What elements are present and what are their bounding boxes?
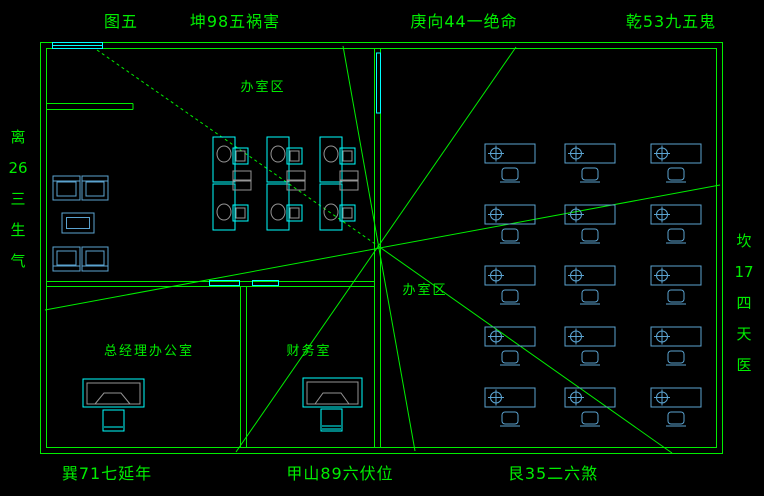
office-chair bbox=[500, 229, 520, 243]
crosshair-target-icon bbox=[488, 329, 504, 345]
workstation-column bbox=[213, 137, 251, 230]
label-office-area-1: 办室区 bbox=[240, 80, 285, 96]
office-desk bbox=[651, 144, 701, 182]
label-26: 26 bbox=[5, 153, 31, 184]
keyboard-block bbox=[233, 171, 251, 180]
label-li-shengqi-column: 离 26 三 生 气 bbox=[5, 122, 31, 277]
office-desk bbox=[651, 388, 701, 426]
door-interior-wall bbox=[377, 53, 381, 113]
ray-southeast bbox=[381, 248, 672, 453]
crosshair-target-icon bbox=[568, 146, 584, 162]
label-office-area-2: 办室区 bbox=[402, 283, 447, 299]
office-desk bbox=[565, 205, 615, 243]
keyboard-block bbox=[233, 181, 251, 190]
floor-plan-drawing bbox=[0, 0, 764, 496]
ray-east-west bbox=[45, 185, 720, 310]
crosshair-target-icon bbox=[654, 207, 670, 223]
finance-desk bbox=[303, 378, 362, 431]
rooms-divider-wall bbox=[241, 286, 247, 448]
office-chair bbox=[500, 351, 520, 365]
label-qian-wugui: 乾53九五鬼 bbox=[626, 14, 716, 30]
label-jiashan-fuwei: 甲山89六伏位 bbox=[286, 466, 393, 482]
workstation-column bbox=[320, 137, 358, 230]
office-chair bbox=[580, 412, 600, 426]
office-desk bbox=[565, 144, 615, 182]
label-qi: 气 bbox=[5, 246, 31, 277]
label-manager-office: 总经理办公室 bbox=[104, 344, 194, 360]
office-chair bbox=[580, 351, 600, 365]
label-tian: 天 bbox=[731, 319, 757, 350]
office-chair bbox=[666, 290, 686, 304]
keyboard-block bbox=[340, 171, 358, 180]
label-17: 17 bbox=[731, 257, 757, 288]
office-chair bbox=[666, 229, 686, 243]
office-desk bbox=[651, 327, 701, 365]
office-chair bbox=[666, 412, 686, 426]
keyboard-block bbox=[340, 181, 358, 190]
office-chair bbox=[500, 168, 520, 182]
label-yi: 医 bbox=[731, 350, 757, 381]
crosshair-target-icon bbox=[488, 390, 504, 406]
crosshair-target-icon bbox=[568, 329, 584, 345]
office-desk bbox=[485, 388, 535, 426]
label-si: 四 bbox=[731, 288, 757, 319]
label-kun-huohai: 坤98五祸害 bbox=[190, 14, 280, 30]
office-chair bbox=[500, 412, 520, 426]
office-desk bbox=[565, 266, 615, 304]
label-gengxiang-jueming: 庚向44一绝命 bbox=[410, 14, 517, 30]
feng-shui-rays bbox=[45, 46, 720, 453]
keyboard-block bbox=[287, 171, 305, 180]
crosshair-target-icon bbox=[488, 207, 504, 223]
crosshair-target-icon bbox=[654, 268, 670, 284]
crosshair-target-icon bbox=[568, 390, 584, 406]
office-desk bbox=[565, 388, 615, 426]
manager-chair bbox=[103, 410, 124, 431]
office-desk bbox=[485, 144, 535, 182]
crosshair-target-icon bbox=[654, 390, 670, 406]
office-desk bbox=[485, 266, 535, 304]
label-finance-room: 财务室 bbox=[286, 344, 331, 360]
partition-stub-wall bbox=[46, 104, 133, 110]
finance-chair bbox=[321, 409, 342, 431]
office-chair bbox=[666, 351, 686, 365]
reception-sofa-set bbox=[53, 176, 108, 271]
workstation-column bbox=[267, 137, 305, 230]
label-kan: 坎 bbox=[731, 226, 757, 257]
office-desk bbox=[485, 327, 535, 365]
crosshair-target-icon bbox=[488, 146, 504, 162]
label-figure-number: 图五 bbox=[104, 14, 138, 30]
office-desk bbox=[485, 205, 535, 243]
crosshair-target-icon bbox=[488, 268, 504, 284]
office-chair bbox=[500, 290, 520, 304]
office-desk bbox=[565, 327, 615, 365]
label-kan-tianyi-column: 坎 17 四 天 医 bbox=[731, 226, 757, 381]
office-desk bbox=[651, 266, 701, 304]
crosshair-target-icon bbox=[568, 207, 584, 223]
office-chair bbox=[666, 168, 686, 182]
office-desk bbox=[651, 205, 701, 243]
label-san: 三 bbox=[5, 184, 31, 215]
cad-canvas: 图五 坤98五祸害 庚向44一绝命 乾53九五鬼 巽71七延年 甲山89六伏位 … bbox=[0, 0, 764, 496]
label-li: 离 bbox=[5, 122, 31, 153]
office-chair bbox=[580, 290, 600, 304]
label-gen-liusha: 艮35二六煞 bbox=[508, 466, 598, 482]
manager-desk bbox=[83, 379, 144, 431]
office-chair bbox=[580, 229, 600, 243]
label-sheng: 生 bbox=[5, 215, 31, 246]
label-xun-yannian: 巽71七延年 bbox=[62, 466, 152, 482]
crosshair-target-icon bbox=[654, 329, 670, 345]
crosshair-target-icon bbox=[654, 146, 670, 162]
crosshair-target-icon bbox=[568, 268, 584, 284]
window-top-left bbox=[53, 43, 103, 49]
office-chair bbox=[580, 168, 600, 182]
